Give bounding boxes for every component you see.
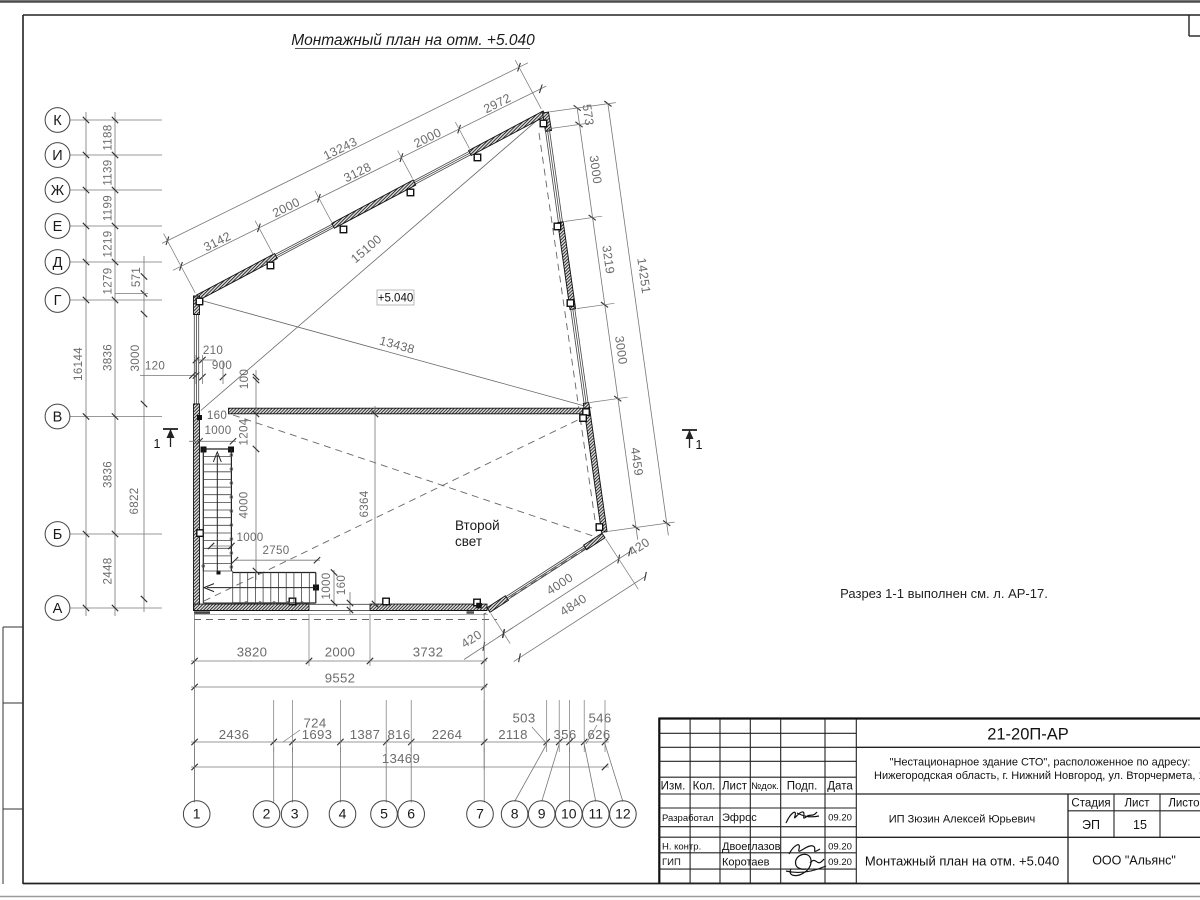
svg-text:Г: Г [54, 293, 62, 309]
svg-text:21-20П-АР: 21-20П-АР [987, 726, 1069, 744]
svg-text:Нижегородская область, г. Нижн: Нижегородская область, г. Нижний Новгоро… [874, 770, 1200, 782]
svg-text:1279: 1279 [102, 268, 115, 295]
svg-text:Б: Б [53, 527, 63, 543]
svg-text:3: 3 [291, 806, 299, 822]
svg-text:Н. контр.: Н. контр. [662, 842, 701, 853]
svg-text:12: 12 [615, 806, 631, 822]
svg-text:160: 160 [335, 575, 348, 595]
svg-text:Монтажный план на отм. +5.040: Монтажный план на отм. +5.040 [865, 854, 1059, 869]
svg-text:2000: 2000 [325, 645, 356, 660]
svg-text:И: И [52, 148, 62, 164]
svg-text:Изм.: Изм. [661, 781, 686, 793]
svg-text:№док.: №док. [751, 781, 779, 792]
svg-text:9552: 9552 [325, 671, 356, 686]
svg-text:Лист: Лист [1125, 798, 1151, 810]
svg-text:13469: 13469 [382, 751, 420, 766]
svg-text:120: 120 [145, 360, 165, 373]
svg-text:2118: 2118 [498, 727, 528, 742]
svg-text:1387: 1387 [350, 727, 381, 742]
svg-text:Монтажный план на отм. +5.040: Монтажный план на отм. +5.040 [291, 32, 535, 49]
svg-text:6: 6 [407, 806, 415, 822]
svg-text:16144: 16144 [72, 347, 85, 381]
svg-text:Д: Д [53, 255, 63, 271]
svg-text:Е: Е [53, 219, 63, 235]
svg-text:+5.040: +5.040 [378, 293, 414, 305]
svg-text:Стадия: Стадия [1071, 798, 1110, 810]
svg-text:4000: 4000 [238, 492, 251, 519]
svg-text:724: 724 [304, 716, 327, 731]
svg-text:1000: 1000 [205, 424, 232, 437]
svg-text:Листов: Листов [1168, 798, 1200, 810]
svg-text:А: А [53, 601, 63, 617]
svg-text:3836: 3836 [102, 344, 115, 371]
svg-text:2: 2 [263, 806, 271, 822]
svg-text:6364: 6364 [358, 490, 371, 517]
svg-text:3836: 3836 [102, 461, 115, 488]
svg-text:11: 11 [589, 806, 604, 822]
svg-text:Разработал: Разработал [662, 813, 714, 824]
svg-text:2264: 2264 [432, 727, 463, 742]
svg-text:3000: 3000 [129, 345, 142, 372]
svg-text:1219: 1219 [102, 231, 115, 258]
svg-text:1139: 1139 [102, 159, 115, 185]
svg-text:ГИП: ГИП [662, 857, 681, 868]
svg-text:ООО "Альянс": ООО "Альянс" [1092, 854, 1176, 868]
svg-text:ИП Зюзин Алексей Юрьевич: ИП Зюзин Алексей Юрьевич [889, 814, 1036, 826]
svg-text:2448: 2448 [102, 558, 115, 585]
svg-text:1000: 1000 [320, 573, 333, 600]
svg-text:К: К [53, 113, 62, 129]
svg-text:210: 210 [203, 344, 223, 357]
svg-text:Кол.: Кол. [693, 781, 716, 793]
svg-text:1: 1 [193, 806, 201, 822]
svg-text:1199: 1199 [102, 195, 115, 221]
svg-text:6822: 6822 [128, 488, 141, 515]
svg-text:900: 900 [212, 359, 232, 372]
svg-text:1: 1 [696, 438, 703, 452]
svg-text:8: 8 [511, 806, 519, 822]
svg-text:546: 546 [589, 711, 612, 726]
svg-text:4: 4 [339, 806, 347, 822]
svg-text:7: 7 [476, 806, 484, 822]
svg-text:Разрез 1-1 выполнен см. л. АР-: Разрез 1-1 выполнен см. л. АР-17. [840, 586, 1048, 601]
svg-text:100: 100 [238, 369, 251, 389]
svg-text:09.20: 09.20 [828, 842, 852, 853]
svg-text:503: 503 [513, 711, 536, 726]
svg-text:Второй: Второй [455, 518, 500, 533]
svg-text:2750: 2750 [263, 544, 290, 557]
svg-text:816: 816 [388, 727, 411, 742]
svg-text:Подп.: Подп. [787, 781, 818, 793]
svg-text:Лист: Лист [722, 781, 748, 793]
svg-text:3820: 3820 [237, 645, 268, 660]
svg-text:10: 10 [561, 806, 577, 822]
svg-text:15: 15 [1133, 818, 1147, 832]
svg-text:Дата: Дата [827, 781, 853, 793]
svg-text:626: 626 [588, 727, 611, 742]
svg-text:свет: свет [455, 534, 482, 549]
svg-text:1: 1 [154, 437, 161, 451]
svg-text:3732: 3732 [413, 645, 444, 660]
svg-text:Двоеглазов: Двоеглазов [722, 841, 781, 853]
svg-text:Эфрос: Эфрос [722, 812, 757, 824]
svg-text:"Нестационарное здание СТО", р: "Нестационарное здание СТО", расположенн… [890, 757, 1191, 769]
svg-text:1188: 1188 [102, 124, 115, 150]
svg-text:В: В [53, 410, 63, 426]
svg-text:ЭП: ЭП [1082, 818, 1100, 832]
svg-text:2436: 2436 [219, 727, 250, 742]
svg-text:356: 356 [554, 727, 577, 742]
svg-text:Коротаев: Коротаев [722, 857, 770, 869]
svg-text:1204: 1204 [238, 418, 251, 445]
svg-text:571: 571 [130, 267, 143, 287]
svg-text:09.20: 09.20 [828, 813, 852, 824]
svg-text:09.20: 09.20 [828, 857, 852, 868]
svg-text:9: 9 [538, 806, 546, 822]
svg-text:Ж: Ж [51, 183, 65, 199]
svg-text:160: 160 [207, 409, 227, 422]
svg-text:5: 5 [380, 806, 388, 822]
svg-text:1000: 1000 [237, 531, 264, 544]
